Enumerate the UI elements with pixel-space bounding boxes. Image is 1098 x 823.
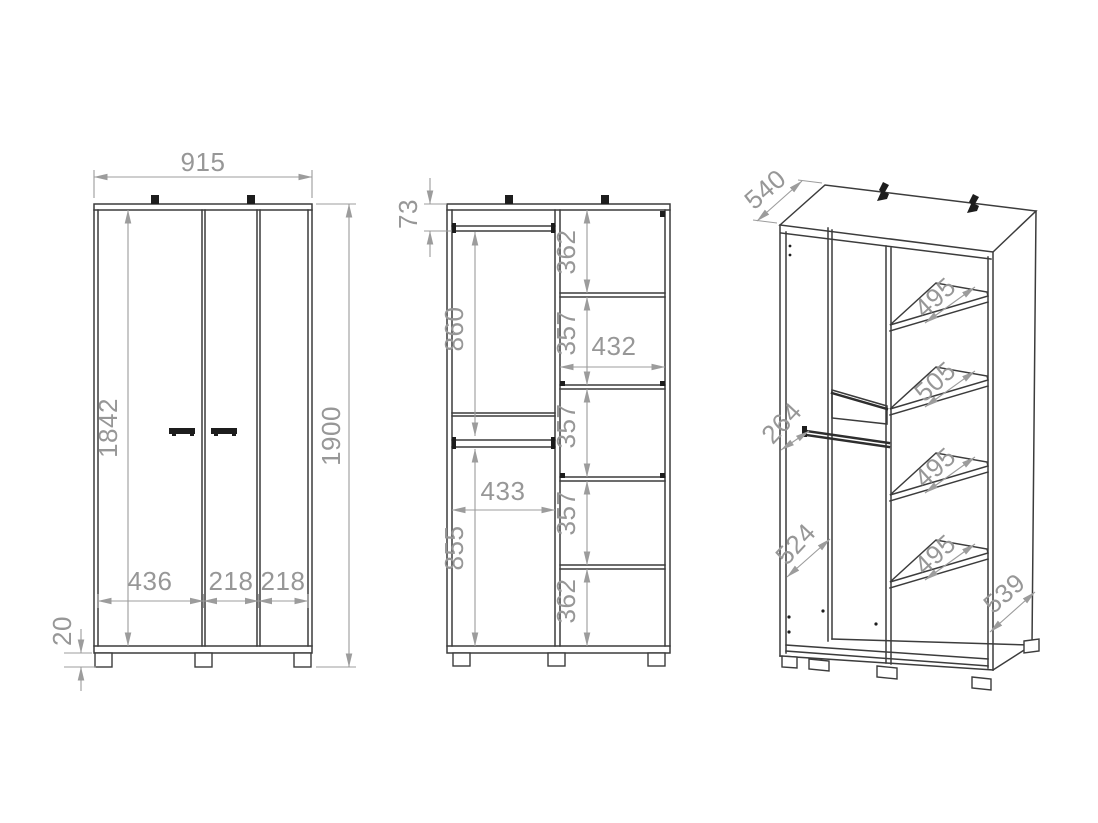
- dim-shelf-gap-2: 357: [551, 311, 581, 356]
- wall-bracket-icon: [151, 195, 159, 204]
- dim-lower-depth: 524: [769, 517, 822, 570]
- dim-right-door-width: 218: [261, 566, 306, 596]
- dim-shelf-depth-2: 505: [908, 355, 961, 407]
- foot: [294, 653, 311, 667]
- front-feet: [95, 653, 311, 667]
- dim-total-height: 1900: [316, 406, 346, 466]
- dim-upper-section-height: 860: [439, 307, 469, 352]
- front-view: 915 1842 1900 436 218 218 20: [47, 147, 356, 691]
- foot: [782, 656, 797, 668]
- dim-shelf-gap-5: 362: [551, 579, 581, 624]
- foot: [95, 653, 112, 667]
- dim-shelf-depth-4: 495: [908, 528, 961, 580]
- door-handle: [169, 428, 195, 434]
- foot: [877, 666, 897, 679]
- dim-shelf-depth-3: 495: [908, 441, 961, 493]
- dim-rail-inset: 264: [755, 396, 808, 449]
- foot: [972, 677, 991, 690]
- dim-shelf-gap-3: 357: [551, 404, 581, 449]
- foot: [548, 653, 565, 666]
- foot: [453, 653, 470, 666]
- wardrobe-dimension-drawing: 915 1842 1900 436 218 218 20: [0, 0, 1098, 823]
- perspective-view: 540 264 524 495 505 495 495 539: [738, 163, 1039, 690]
- dim-overall-width: 915: [181, 147, 226, 177]
- dim-left-compartment-width: 433: [481, 476, 526, 506]
- dim-door-height: 1842: [93, 398, 123, 458]
- dim-plinth-height: 20: [47, 616, 77, 646]
- interior-view: 73 860 433 855 362 357 357 357 362 432: [393, 178, 670, 666]
- wall-bracket-icon: [505, 195, 513, 204]
- dim-depth: 540: [738, 163, 792, 215]
- wall-bracket-icon: [247, 195, 255, 204]
- dim-shelf-gap-1: 362: [551, 230, 581, 275]
- dim-rail-offset: 73: [393, 199, 423, 229]
- dim-shelf-gap-4: 357: [551, 491, 581, 536]
- front-hardware: [151, 195, 255, 436]
- dim-base-depth: 539: [977, 567, 1031, 619]
- dim-shelf-depth-1: 495: [908, 271, 961, 323]
- dim-lower-section-height: 855: [439, 526, 469, 571]
- foot: [1024, 639, 1039, 653]
- top-panel: [780, 185, 1036, 252]
- door-handle: [211, 428, 237, 434]
- dim-right-compartment-width: 432: [592, 331, 637, 361]
- interior-dimension-lines: [424, 178, 665, 646]
- dim-middle-door-width: 218: [209, 566, 254, 596]
- dim-left-door-width: 436: [128, 566, 173, 596]
- foot: [648, 653, 665, 666]
- interior-feet: [453, 653, 665, 666]
- foot: [195, 653, 212, 667]
- wall-bracket-icon: [601, 195, 609, 204]
- technical-drawing-canvas: 915 1842 1900 436 218 218 20: [0, 0, 1098, 823]
- foot: [809, 659, 829, 671]
